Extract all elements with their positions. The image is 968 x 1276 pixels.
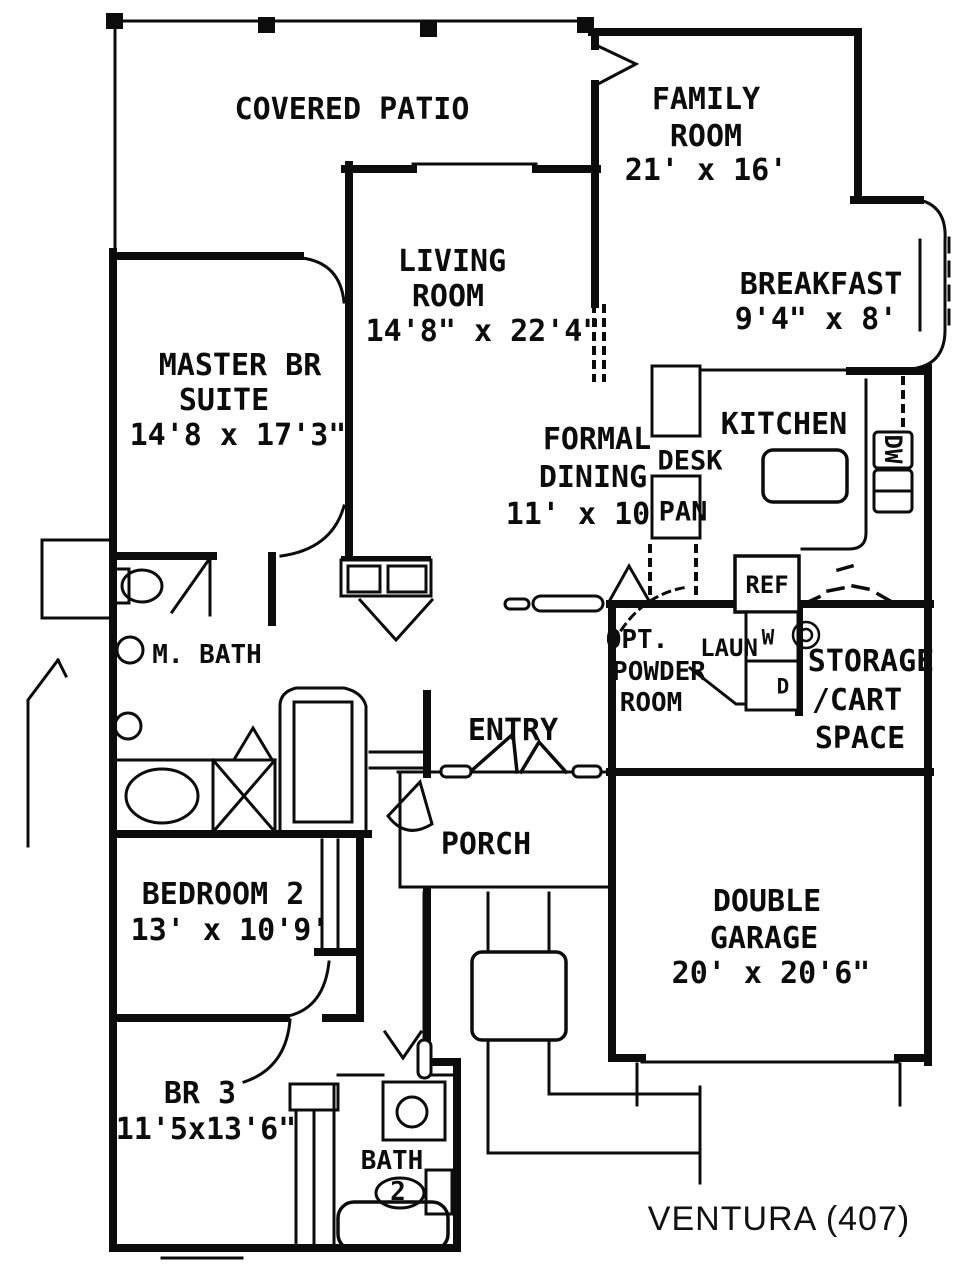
entry-label: ENTRY (468, 716, 558, 746)
walkway-planter-box (472, 952, 566, 1040)
bedroom3-label: BR 3 (164, 1079, 236, 1109)
porch-label: PORCH (441, 830, 531, 860)
desk-label: DESK (657, 448, 722, 475)
garage-dims: 20' x 20'6" (672, 959, 871, 989)
porch-step-icon (388, 782, 432, 830)
shower-icon (213, 728, 275, 832)
fireplace-icon (341, 560, 432, 640)
living-room-dims: 14'8" x 22'4" (366, 317, 601, 347)
dryer-label: D (777, 677, 790, 698)
master-toilet-icon (113, 569, 162, 603)
formal-dining-label: FORMAL (543, 425, 651, 455)
washer-label: W (762, 628, 775, 649)
bath2-label: BATH (361, 1148, 424, 1174)
master-suite-label-2: SUITE (179, 386, 269, 416)
bath2-label-2: 2 (390, 1179, 406, 1205)
master-suite-dims: 14'8 x 17'3" (130, 421, 347, 451)
patio-post-icons (106, 13, 594, 37)
br3-closet-cap (290, 1084, 338, 1110)
storage-label-2: /CART (812, 686, 902, 716)
vanity-sink-icon (113, 760, 213, 832)
floor-plan: COVERED PATIO FAMILY ROOM 21' x 16' LIVI… (0, 0, 968, 1276)
powder-room-label: OPT. (606, 627, 669, 653)
powder-room-label-2: POWDER (612, 659, 706, 685)
bath2-toilet-icon (376, 1170, 452, 1214)
bath2-tub-icon (338, 1202, 448, 1250)
master-sink2-icon (115, 713, 141, 739)
master-suite-label: MASTER BR (159, 351, 322, 381)
bedroom2-label: BEDROOM 2 (142, 880, 305, 910)
garage-label: DOUBLE (713, 887, 821, 917)
kitchen-label: KITCHEN (721, 410, 847, 440)
breakfast-dims: 9'4" x 8' (735, 305, 898, 335)
floor-plan-drawing (0, 0, 968, 1276)
kitchen-island (763, 450, 847, 502)
family-room-dims: 21' x 16' (625, 156, 788, 186)
living-room-label: LIVING (398, 247, 506, 277)
garage-label-2: GARAGE (710, 924, 818, 954)
linen-closet-box (42, 540, 113, 618)
bedroom2-dims: 13' x 10'9' (131, 916, 330, 946)
breakfast-label: BREAKFAST (740, 270, 903, 300)
walk-in-closet (280, 688, 366, 834)
covered-patio-label: COVERED PATIO (235, 95, 470, 125)
living-room-label-2: ROOM (412, 282, 484, 312)
pantry-label: PAN (659, 499, 708, 526)
storage-label: STORAGE (808, 647, 934, 677)
laundry-label: LAUN (700, 636, 758, 660)
formal-dining-dims: 11' x 10 (506, 500, 651, 530)
plan-title: VENTURA (407) (648, 1202, 910, 1236)
counter-dash-marks (806, 566, 892, 603)
bedroom3-dims: 11'5x13'6" (116, 1115, 297, 1145)
kitchen-sink-icon (874, 470, 912, 512)
desk-cabinet (652, 366, 700, 436)
bath2-sink-icon (383, 1082, 445, 1140)
formal-dining-label-2: DINING (539, 463, 647, 493)
dishwasher-label: DW (881, 435, 905, 464)
family-room-label: FAMILY (652, 85, 760, 115)
storage-label-3: SPACE (815, 724, 905, 754)
family-room-label-2: ROOM (670, 122, 742, 152)
refrigerator-label: REF (745, 573, 788, 597)
master-bath-label: M. BATH (152, 642, 262, 668)
powder-room-label-3: ROOM (620, 690, 683, 716)
master-sink-icon (117, 637, 143, 663)
bath2-door-icon (385, 1032, 421, 1058)
